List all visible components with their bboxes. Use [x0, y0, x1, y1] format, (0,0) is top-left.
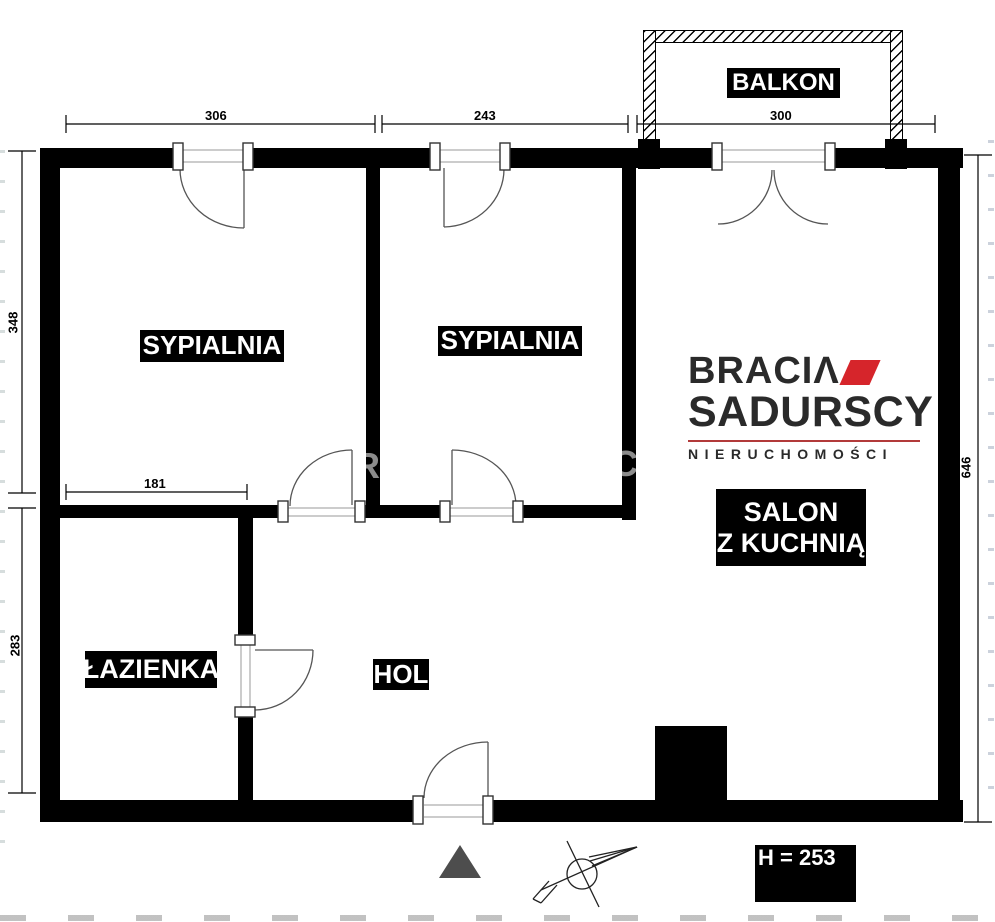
salon-line1-text: SALON [744, 497, 839, 527]
dim-283: 283 [7, 635, 22, 657]
label-salon: SALON Z KUCHNIĄ [716, 489, 866, 566]
north-triangle-icon [439, 845, 481, 878]
hol-text: HOL [374, 660, 429, 689]
label-sypialnia-1: SYPIALNIA [140, 330, 284, 362]
label-lazienka: ŁAZIENKA [85, 651, 217, 688]
logo-divider [688, 440, 920, 442]
lazienka-text: ŁAZIENKA [83, 654, 220, 684]
ceiling-height-text: H = 253 [755, 845, 836, 871]
dim-243: 243 [474, 108, 496, 123]
logo-line1: BRACIΛ [688, 352, 920, 390]
agency-logo: BRACIΛ SADURSCY NIERUCHOMOŚCI [688, 352, 920, 462]
balkon-text: BALKON [732, 70, 835, 97]
frame-brackets [173, 143, 835, 824]
opening-lines [178, 150, 830, 817]
dim-646: 646 [958, 457, 973, 479]
logo-roof-icon [839, 360, 880, 385]
dim-300: 300 [770, 108, 792, 123]
label-ceiling-height: H = 253 [755, 845, 856, 902]
dim-306: 306 [205, 108, 227, 123]
logo-line2: SADURSCY [688, 391, 920, 434]
dim-348: 348 [5, 312, 20, 334]
compass-icon [533, 841, 637, 907]
door-swings [180, 168, 828, 798]
logo-bracia-text: BRACIΛ [688, 352, 840, 390]
sypialnia1-text: SYPIALNIA [143, 331, 282, 360]
salon-line2-text: Z KUCHNIĄ [717, 528, 866, 558]
sypialnia2-text: SYPIALNIA [441, 326, 580, 355]
label-balkon: BALKON [727, 68, 840, 98]
logo-line3: NIERUCHOMOŚCI [688, 446, 920, 462]
label-sypialnia-2: SYPIALNIA [438, 326, 582, 356]
dim-181: 181 [144, 476, 166, 491]
floorplan: R C [0, 0, 995, 922]
label-hol: HOL [373, 659, 429, 690]
